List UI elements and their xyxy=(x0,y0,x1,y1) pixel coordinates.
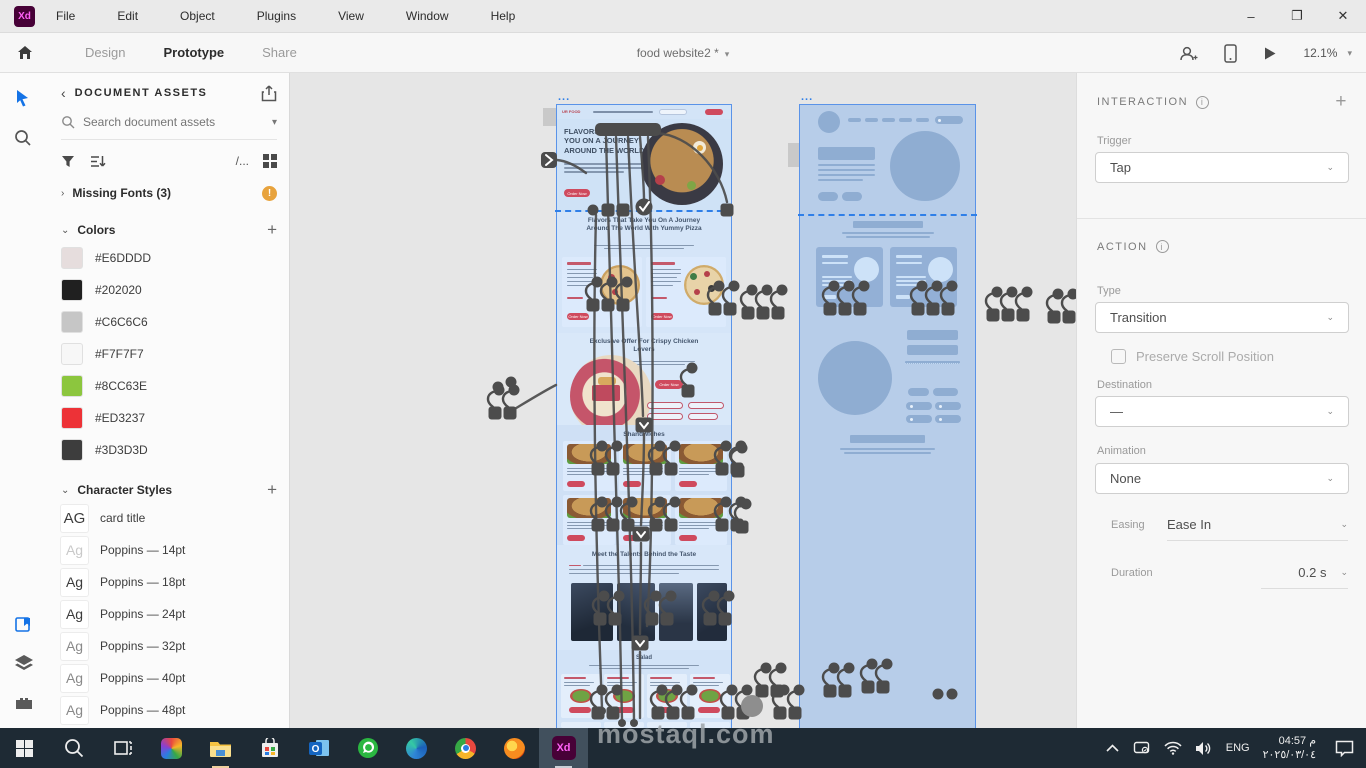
destination-dropdown[interactable]: —⌄ xyxy=(1095,396,1349,427)
animation-label: Animation xyxy=(1097,445,1348,457)
pizza-section: Flavors That Take You On A Journey Aroun… xyxy=(557,212,731,333)
colors-header-row[interactable]: ⌄ Colors + xyxy=(61,220,277,240)
menu-help[interactable]: Help xyxy=(470,0,537,33)
order-now-button: Order Now xyxy=(655,380,683,389)
color-swatch[interactable] xyxy=(61,407,83,429)
missing-fonts-label: Missing Fonts (3) xyxy=(72,186,171,200)
expand-chevron-icon[interactable]: › xyxy=(61,188,64,199)
color-swatch-row[interactable]: #F7F7F7 xyxy=(61,341,277,367)
sort-icon[interactable] xyxy=(90,155,106,168)
chevron-down-icon: ▾ xyxy=(725,49,730,59)
wireframe-card xyxy=(890,247,957,307)
interaction-header: INTERACTION xyxy=(1097,96,1188,108)
layers-panel-icon[interactable] xyxy=(14,654,34,672)
xd-taskbar-icon[interactable]: Xd xyxy=(539,728,588,768)
windows-taskbar: O Xd xyxy=(0,728,1366,768)
invite-user-icon[interactable] xyxy=(1179,45,1198,62)
preserve-scroll-checkbox[interactable] xyxy=(1111,349,1126,364)
action-header: ACTION xyxy=(1097,241,1148,253)
sandwich-card xyxy=(675,495,727,545)
character-style-row[interactable]: AgPoppins — 18pt xyxy=(61,568,277,596)
warning-badge-icon[interactable]: ! xyxy=(262,186,277,201)
info-icon[interactable]: i xyxy=(1156,240,1169,253)
order-now-button: Order Now xyxy=(651,313,673,320)
interaction-inspector-panel: INTERACTION i + Trigger Tap⌄ ACTION i Ty… xyxy=(1076,73,1366,728)
chevron-down-icon: ⌄ xyxy=(1326,473,1334,484)
color-hex-label: #3D3D3D xyxy=(95,443,148,457)
tool-rail xyxy=(0,73,47,728)
pasteboard-fragment xyxy=(788,143,800,167)
taskbar-search-icon[interactable] xyxy=(49,728,98,768)
action-header-row: ACTION i xyxy=(1097,240,1348,253)
firefox-icon[interactable] xyxy=(490,728,539,768)
order-now-button: Order Now xyxy=(567,313,589,320)
assets-filter-row: /... xyxy=(61,151,277,171)
style-label: Poppins — 40pt xyxy=(100,671,185,685)
style-label: Poppins — 32pt xyxy=(100,639,185,653)
add-interaction-icon[interactable]: + xyxy=(1335,91,1348,113)
character-style-row[interactable]: AgPoppins — 24pt xyxy=(61,600,277,628)
sandwich-card xyxy=(619,495,671,545)
artboard-wireframe[interactable]: ... xyxy=(800,105,975,728)
color-swatch[interactable] xyxy=(61,311,83,333)
grid-view-icon[interactable] xyxy=(263,154,277,168)
add-color-icon[interactable]: + xyxy=(267,220,277,240)
colors-header: Colors xyxy=(77,223,115,237)
style-label: Poppins — 24pt xyxy=(100,607,185,621)
workspace: ‹ DOCUMENT ASSETS ▾ xyxy=(0,73,1366,728)
missing-fonts-row[interactable]: › Missing Fonts (3) ! xyxy=(61,183,277,203)
site-header: UR FOOD xyxy=(557,105,731,119)
volume-icon[interactable] xyxy=(1195,741,1213,756)
type-dropdown[interactable]: Transition⌄ xyxy=(1095,302,1349,333)
chevron-down-icon: ⌄ xyxy=(1340,567,1348,578)
color-hex-label: #C6C6C6 xyxy=(95,315,148,329)
menu-file[interactable]: File xyxy=(35,0,96,33)
chevron-down-icon: ⌄ xyxy=(1326,406,1334,417)
pasteboard-fragment xyxy=(543,108,557,126)
style-sample: Ag xyxy=(61,569,88,596)
select-tool-icon[interactable] xyxy=(14,89,31,107)
filter-icon[interactable] xyxy=(61,155,75,168)
collapse-chevron-icon[interactable]: ⌄ xyxy=(61,485,69,496)
search-input[interactable] xyxy=(83,115,243,129)
notification-center-icon[interactable] xyxy=(1335,740,1354,757)
color-hex-label: #F7F7F7 xyxy=(95,347,144,361)
style-sample: Ag xyxy=(61,633,88,660)
color-swatch[interactable] xyxy=(61,439,83,461)
language-indicator[interactable]: ENG xyxy=(1226,742,1250,754)
wireframe-card xyxy=(816,247,883,307)
style-sample: AG xyxy=(61,505,88,532)
interaction-header-row: INTERACTION i + xyxy=(1097,91,1348,113)
whatsapp-icon[interactable] xyxy=(343,728,392,768)
chevron-down-icon: ⌄ xyxy=(1340,519,1348,530)
cast-device-icon[interactable] xyxy=(1132,741,1151,756)
plugins-panel-icon[interactable] xyxy=(14,694,34,710)
salad-section: Salad xyxy=(557,650,731,728)
color-hex-label: #E6DDDD xyxy=(95,251,151,265)
minimize-button[interactable]: – xyxy=(1228,0,1274,33)
assets-panel-title: DOCUMENT ASSETS xyxy=(75,87,208,99)
export-assets-icon[interactable] xyxy=(261,85,277,102)
wifi-icon[interactable] xyxy=(1164,741,1182,755)
start-button[interactable] xyxy=(0,728,49,768)
panel-divider xyxy=(61,139,277,140)
assets-panel-icon[interactable] xyxy=(14,614,34,634)
chefs-section: Meet the Talents Behind the Taste xyxy=(557,545,731,650)
artboard-title[interactable]: ... xyxy=(801,92,813,102)
destination-label: Destination xyxy=(1097,379,1348,391)
search-chevron-icon[interactable]: ▾ xyxy=(272,117,277,128)
system-tray: ENG 04:57 م ٢٠٢٥/٠٣/٠٤ xyxy=(1106,734,1366,763)
color-hex-label: #ED3237 xyxy=(95,411,145,425)
color-swatch[interactable] xyxy=(61,279,83,301)
menu-edit[interactable]: Edit xyxy=(96,0,159,33)
character-style-row[interactable]: AgPoppins — 14pt xyxy=(61,536,277,564)
pizza-card: Order Now xyxy=(646,257,726,327)
chicken-heading: Exclusive Offer For Crispy Chicken Lover… xyxy=(579,338,709,354)
date: ٢٠٢٥/٠٣/٠٤ xyxy=(1263,748,1316,762)
menu-object[interactable]: Object xyxy=(159,0,236,33)
pizza-image xyxy=(600,265,640,305)
zoom-tool-icon[interactable] xyxy=(14,129,32,147)
pizza-heading: Flavors That Take You On A Journey Aroun… xyxy=(584,217,704,233)
color-swatch-row[interactable]: #ED3237 xyxy=(61,405,277,431)
microsoft-store-icon[interactable] xyxy=(245,728,294,768)
color-swatch-row[interactable]: #E6DDDD xyxy=(61,245,277,271)
hero-section: FLAVORS THAT TAKE YOU ON A JOURNEY AROUN… xyxy=(557,119,731,210)
zoom-chevron-icon[interactable]: ▾ xyxy=(1347,48,1352,59)
prototype-canvas[interactable]: ... UR FOOD FLAVORS THAT TAKE YOU ON A J… xyxy=(290,73,1076,728)
trigger-label: Trigger xyxy=(1097,135,1348,147)
color-swatch-row[interactable]: #202020 xyxy=(61,277,277,303)
order-now-button: Order Now xyxy=(564,189,590,197)
close-button[interactable]: ✕ xyxy=(1320,0,1366,33)
add-character-style-icon[interactable]: + xyxy=(267,480,277,500)
restore-button[interactable]: ❐ xyxy=(1274,0,1320,33)
chrome-icon[interactable] xyxy=(441,728,490,768)
menu-window[interactable]: Window xyxy=(385,0,470,33)
type-label: Type xyxy=(1097,285,1348,297)
style-label: Poppins — 48pt xyxy=(100,703,185,717)
sandwich-heading: Shandwiches xyxy=(604,431,684,439)
sandwich-card xyxy=(619,441,671,491)
document-title[interactable]: food website2 *▾ xyxy=(0,33,1366,73)
color-swatch[interactable] xyxy=(61,343,83,365)
chevron-down-icon: ⌄ xyxy=(1326,312,1334,323)
style-sample: Ag xyxy=(61,665,88,692)
color-swatch-row[interactable]: #C6C6C6 xyxy=(61,309,277,335)
time: 04:57 م xyxy=(1263,734,1316,748)
assets-search-row: ▾ xyxy=(61,111,277,133)
style-label: Poppins — 18pt xyxy=(100,575,185,589)
chicken-offer-section: Exclusive Offer For Crispy Chicken Lover… xyxy=(557,333,731,425)
color-swatch-row[interactable]: #3D3D3D xyxy=(61,437,277,463)
tray-chevron-up-icon[interactable] xyxy=(1106,744,1119,752)
menubar: Xd File Edit Object Plugins View Window … xyxy=(0,0,1366,33)
salad-heading: Salad xyxy=(619,655,669,663)
style-sample: Ag xyxy=(61,537,88,564)
svg-text:O: O xyxy=(311,744,319,755)
character-styles-header-row[interactable]: ⌄ Character Styles + xyxy=(61,480,277,500)
artboard-design[interactable]: ... UR FOOD FLAVORS THAT TAKE YOU ON A J… xyxy=(557,105,731,728)
sandwich-card xyxy=(563,495,615,545)
search-icon xyxy=(61,115,75,129)
style-sample: Ag xyxy=(61,697,88,724)
scroll-fold-line xyxy=(798,214,977,216)
color-swatch[interactable] xyxy=(61,375,83,397)
chefs-heading: Meet the Talents Behind the Taste xyxy=(574,551,714,559)
character-styles-header: Character Styles xyxy=(77,483,172,497)
character-style-row[interactable]: AGcard title xyxy=(61,504,277,532)
noodle-bowl-image xyxy=(641,123,723,205)
document-assets-panel: ‹ DOCUMENT ASSETS ▾ xyxy=(47,73,290,728)
outlook-icon[interactable]: O xyxy=(294,728,343,768)
collapse-chevron-icon[interactable]: ⌄ xyxy=(61,225,69,236)
file-explorer-icon[interactable] xyxy=(196,728,245,768)
duration-row: Duration 0.2 s ⌄ xyxy=(1111,565,1348,589)
offer-option-pill xyxy=(647,402,683,409)
office-icon[interactable] xyxy=(147,728,196,768)
trigger-dropdown[interactable]: Tap⌄ xyxy=(1095,152,1349,183)
easing-dropdown[interactable]: Easing Ease In ⌄ xyxy=(1111,517,1348,532)
task-view-icon[interactable] xyxy=(98,728,147,768)
style-sample: Ag xyxy=(61,601,88,628)
panel-divider xyxy=(1077,218,1366,219)
easing-label: Easing xyxy=(1111,519,1167,531)
site-logo: UR FOOD xyxy=(562,109,580,114)
animation-dropdown[interactable]: None⌄ xyxy=(1095,463,1349,494)
duration-label: Duration xyxy=(1111,567,1153,579)
color-hex-label: #8CC63E xyxy=(95,379,147,393)
list-view-label[interactable]: /... xyxy=(236,154,249,168)
artboard-title[interactable]: ... xyxy=(558,92,570,102)
device-preview-icon[interactable] xyxy=(1224,44,1237,63)
sandwich-card xyxy=(563,441,615,491)
color-swatch-row[interactable]: #8CC63E xyxy=(61,373,277,399)
color-hex-label: #202020 xyxy=(95,283,142,297)
duration-dropdown[interactable]: Duration 0.2 s ⌄ xyxy=(1111,565,1348,580)
preserve-scroll-label: Preserve Scroll Position xyxy=(1136,349,1274,364)
easing-row: Easing Ease In ⌄ xyxy=(1111,517,1348,541)
chevron-down-icon: ⌄ xyxy=(1326,162,1334,173)
sandwich-card xyxy=(675,441,727,491)
character-style-row[interactable]: AgPoppins — 40pt xyxy=(61,664,277,692)
window-controls: – ❐ ✕ xyxy=(1228,0,1366,33)
info-icon[interactable]: i xyxy=(1196,96,1209,109)
taskbar-clock[interactable]: 04:57 م ٢٠٢٥/٠٣/٠٤ xyxy=(1263,734,1316,763)
character-style-row[interactable]: AgPoppins — 48pt xyxy=(61,696,277,724)
xd-application-window: Xd File Edit Object Plugins View Window … xyxy=(0,0,1366,768)
style-label: Poppins — 14pt xyxy=(100,543,185,557)
assets-header-row: ‹ DOCUMENT ASSETS xyxy=(61,83,277,103)
preserve-scroll-row: Preserve Scroll Position xyxy=(1111,349,1348,364)
desktop-preview-play-icon[interactable] xyxy=(1263,46,1277,61)
character-style-row[interactable]: AgPoppins — 32pt xyxy=(61,632,277,660)
hero-heading: FLAVORS THAT TAKE YOU ON A JOURNEY AROUN… xyxy=(564,127,650,155)
back-chevron-icon[interactable]: ‹ xyxy=(61,85,66,101)
pizza-image xyxy=(684,265,724,305)
color-swatch[interactable] xyxy=(61,247,83,269)
xd-app-icon[interactable]: Xd xyxy=(14,6,35,27)
app-toolbar: Design Prototype Share food website2 *▾ … xyxy=(0,33,1366,73)
edge-icon[interactable] xyxy=(392,728,441,768)
zoom-level[interactable]: 12.1% xyxy=(1303,46,1337,60)
toolbar-right: 12.1% ▾ xyxy=(1179,33,1352,73)
style-label: card title xyxy=(100,511,145,525)
menu-view[interactable]: View xyxy=(317,0,385,33)
pizza-card: Order Now xyxy=(562,257,642,327)
menu-plugins[interactable]: Plugins xyxy=(236,0,317,33)
